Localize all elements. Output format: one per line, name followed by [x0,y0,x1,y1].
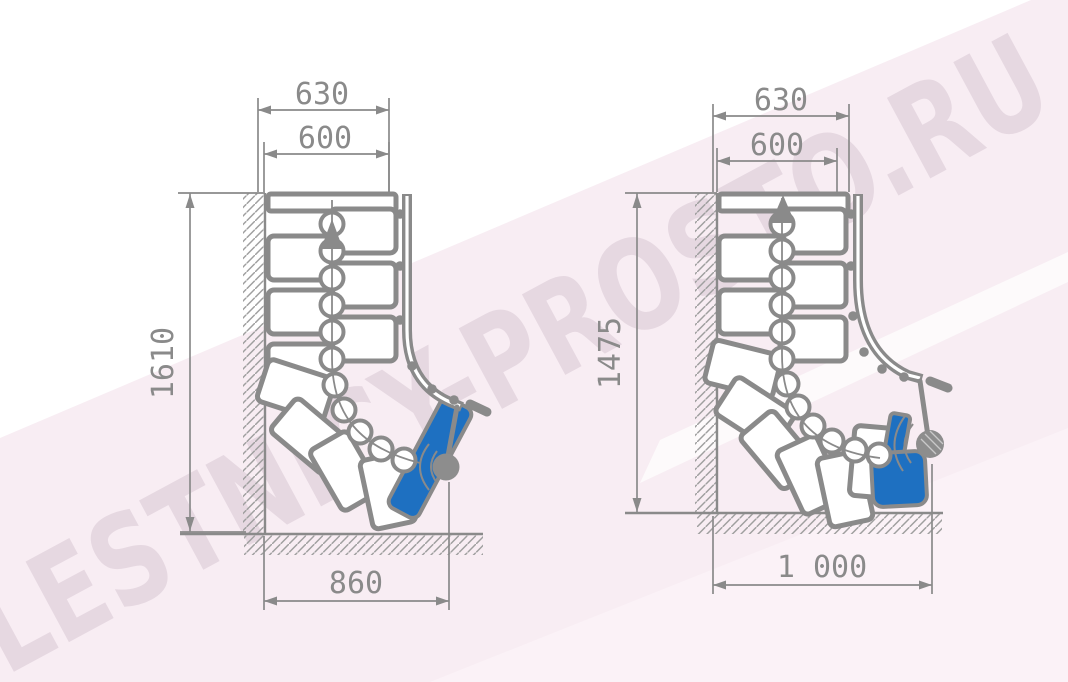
dim-arrowhead [376,106,389,115]
dim-label-top-inner: 600 [298,121,352,156]
wall-hatch [243,193,265,534]
dim-arrowhead [258,106,271,115]
dim-label-width: 1 000 [777,550,867,585]
dim-label-top-outer: 630 [295,77,349,112]
floor-hatch [697,514,942,534]
dim-arrowhead [713,112,726,121]
newel-post [916,430,944,458]
dim-top-inner: 600 [264,121,389,192]
chain-joint [333,399,356,422]
baluster-dot [395,209,405,219]
dim-label-height: 1475 [593,317,628,389]
dim-label-top-outer: 630 [754,83,808,118]
baluster-dot [848,311,858,321]
baluster-dot [449,395,459,405]
baluster-dot [859,347,869,357]
baluster-dot [846,209,856,219]
baluster-dot [899,372,909,382]
baluster-dot [427,384,437,394]
baluster-dot [407,361,417,371]
chain-joint [868,444,891,467]
floor-hatch [244,535,483,555]
baluster-dot [395,315,405,325]
baluster-dot [877,364,887,374]
dim-arrowhead [186,194,195,208]
dim-label-height: 1610 [146,327,181,399]
stair-plans-canvas: LESTNICY-PROSTO.RU [0,0,1068,682]
newel-post [433,454,460,481]
dim-label-width: 860 [329,566,383,601]
dim-label-top-inner: 600 [750,128,804,163]
stair-plan-drawing: LESTNICY-PROSTO.RU [0,0,1068,682]
baluster-dot [846,261,856,271]
dim-arrowhead [376,150,389,159]
baluster-dot [395,261,405,271]
dim-arrowhead [264,150,277,159]
